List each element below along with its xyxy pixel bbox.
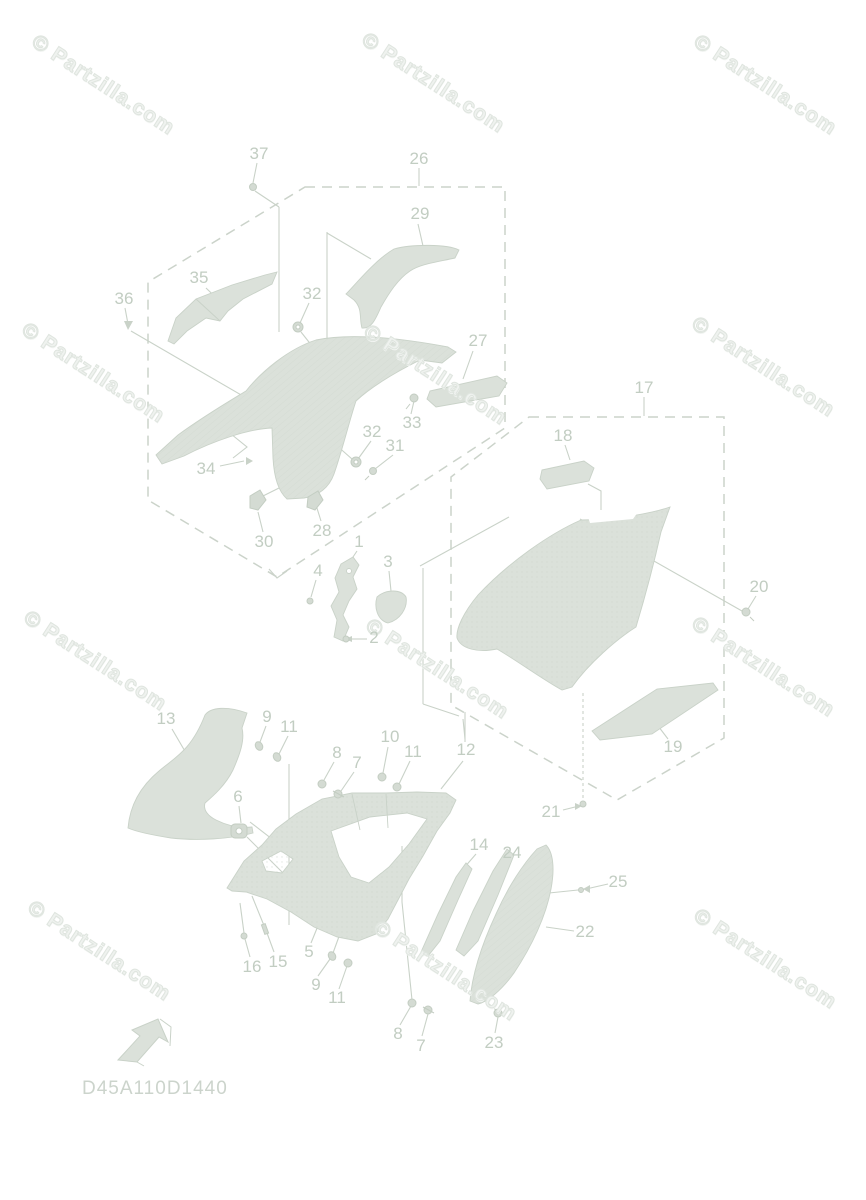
part-29-bracket <box>346 245 459 328</box>
callout-7b: 7 <box>416 1036 425 1056</box>
callout-18: 18 <box>554 426 573 446</box>
screw-16 <box>241 933 247 939</box>
part-19-strip <box>592 683 718 740</box>
part-35-panel-strip <box>168 272 277 344</box>
screw-11b <box>393 783 401 791</box>
bolt-4 <box>307 598 313 604</box>
callout-15: 15 <box>269 952 288 972</box>
callout-4: 4 <box>313 561 322 581</box>
part-17-cowling-dots <box>457 507 670 690</box>
screw-9b <box>327 950 338 961</box>
screw-11a <box>272 751 283 762</box>
pin-15 <box>261 924 268 935</box>
callout-8b: 8 <box>393 1024 402 1044</box>
callout-14: 14 <box>470 835 489 855</box>
part-18-strip <box>540 461 594 489</box>
clip-30 <box>250 490 266 510</box>
callout-36: 36 <box>115 289 134 309</box>
callout-8a: 8 <box>332 743 341 763</box>
callout-20: 20 <box>750 577 769 597</box>
callout-37: 37 <box>250 144 269 164</box>
callout-2: 2 <box>369 628 378 648</box>
callout-30: 30 <box>255 532 274 552</box>
screw-31 <box>370 468 377 475</box>
screw-21 <box>580 801 586 807</box>
callout-31: 31 <box>386 436 405 456</box>
callout-16: 16 <box>243 957 262 977</box>
part-13-inner-panel <box>128 708 253 839</box>
callout-22: 22 <box>576 922 595 942</box>
bolt-2 <box>343 636 349 642</box>
callout-17: 17 <box>635 378 654 398</box>
parts-diagram-page: © Partzilla.com© Partzilla.com© Partzill… <box>0 0 866 1200</box>
screw-25 <box>579 888 584 893</box>
callout-9b: 9 <box>311 975 320 995</box>
callout-13: 13 <box>157 709 176 729</box>
callout-26: 26 <box>410 149 429 169</box>
orientation-arrow-icon <box>118 1019 171 1066</box>
callout-11a: 11 <box>280 717 298 737</box>
callout-35: 35 <box>190 268 209 288</box>
callout-21: 21 <box>542 802 561 822</box>
callout-25: 25 <box>609 872 628 892</box>
screw-20 <box>742 608 750 616</box>
callout-23: 23 <box>485 1033 504 1053</box>
screw-11c <box>344 959 352 967</box>
callout-32a: 32 <box>303 284 322 304</box>
callout-9a: 9 <box>262 707 271 727</box>
callout-33: 33 <box>403 413 422 433</box>
callout-19: 19 <box>664 737 683 757</box>
parts-diagram <box>0 0 866 1200</box>
callout-5: 5 <box>304 942 313 962</box>
part-1-stay-bracket <box>331 557 359 641</box>
diagram-code: D45A110D1440 <box>82 1078 228 1100</box>
callout-28: 28 <box>313 521 332 541</box>
callout-24: 24 <box>503 843 522 863</box>
screw-10 <box>378 773 386 781</box>
callout-7a: 7 <box>352 753 361 773</box>
screw-8a <box>318 780 326 788</box>
screw-33 <box>410 394 418 402</box>
screw-9a <box>254 740 265 751</box>
callout-6: 6 <box>233 787 242 807</box>
screw-8b <box>408 999 416 1007</box>
callout-34: 34 <box>197 459 216 479</box>
callout-11c: 11 <box>328 988 346 1008</box>
callout-3: 3 <box>383 552 392 572</box>
screw-37 <box>250 184 257 191</box>
callout-1: 1 <box>354 532 363 552</box>
callout-10: 10 <box>381 727 400 747</box>
callout-27: 27 <box>469 331 488 351</box>
callout-11b: 11 <box>404 742 422 762</box>
callout-29: 29 <box>411 204 430 224</box>
callout-32b: 32 <box>363 422 382 442</box>
callout-12: 12 <box>457 740 476 760</box>
